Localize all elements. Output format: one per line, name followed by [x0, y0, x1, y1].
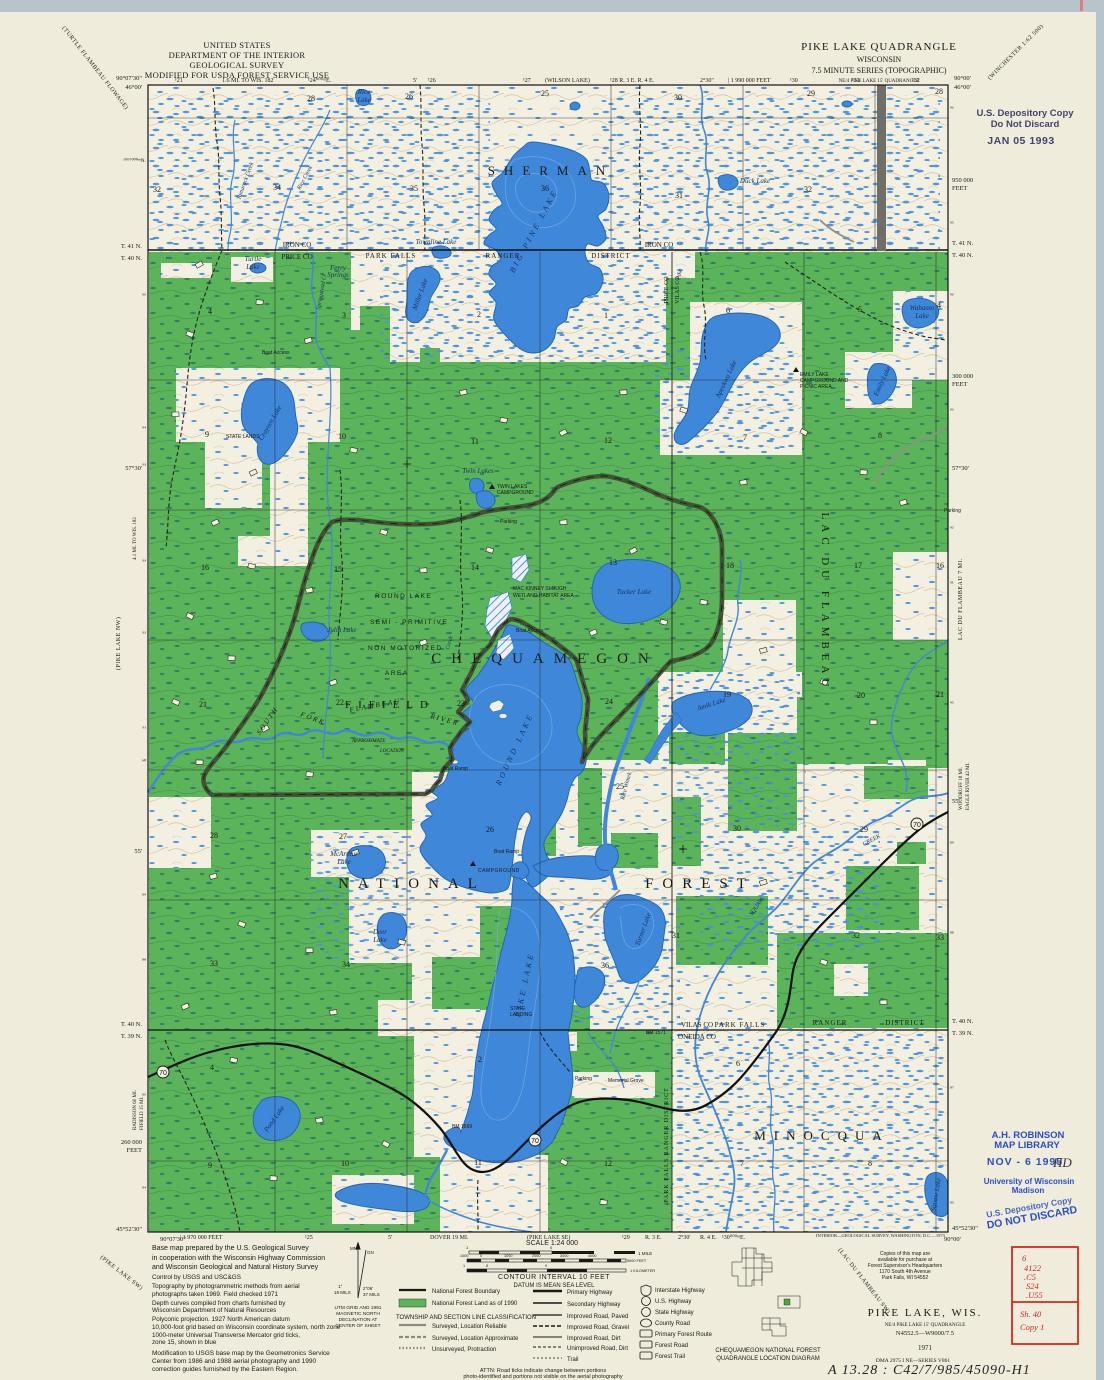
svg-text:Wabasso: Wabasso — [910, 304, 935, 312]
svg-text:FEET: FEET — [126, 1147, 142, 1154]
svg-text:4.1 MI. TO WIS. 182: 4.1 MI. TO WIS. 182 — [133, 517, 138, 560]
svg-text:5000 FEET: 5000 FEET — [627, 1259, 647, 1263]
svg-text:PRICE CO: PRICE CO — [281, 253, 312, 261]
svg-text:photo-identified and portions: photo-identified and portions not visibl… — [463, 1374, 623, 1380]
svg-text:90°07'30": 90°07'30" — [116, 75, 142, 82]
svg-text:33: 33 — [210, 959, 218, 968]
svg-text:1 MILE: 1 MILE — [638, 1251, 652, 1256]
svg-text:Duck Lake: Duck Lake — [739, 177, 770, 185]
svg-text:Improved Road, Paved: Improved Road, Paved — [567, 1314, 628, 1320]
svg-text:¹29: ¹29 — [622, 1235, 630, 1241]
svg-text:90°00': 90°00' — [944, 1236, 961, 1243]
svg-text:ROUND LAKE: ROUND LAKE — [375, 593, 432, 600]
svg-text:1°: 1° — [338, 1284, 343, 1289]
svg-text:⁸⁹: ⁸⁹ — [950, 841, 954, 847]
svg-text:PIKE LAKE QUADRANGLE: PIKE LAKE QUADRANGLE — [801, 41, 957, 53]
svg-text:25: 25 — [616, 782, 624, 791]
svg-text:35: 35 — [410, 184, 418, 193]
svg-text:⁹⁶: ⁹⁶ — [950, 106, 954, 112]
svg-text:Deer: Deer — [372, 928, 387, 936]
svg-text:Do Not Discard: Do Not Discard — [991, 119, 1060, 130]
svg-text:30: 30 — [733, 824, 741, 833]
svg-text:1: 1 — [463, 1264, 465, 1268]
svg-text:Surveyed, Location Approximate: Surveyed, Location Approximate — [432, 1336, 519, 1342]
svg-text:MN: MN — [350, 1246, 357, 1251]
svg-text:DISTRICT: DISTRICT — [885, 1019, 925, 1027]
svg-text:State Highway: State Highway — [655, 1310, 694, 1316]
svg-text:Unimproved Road, Dirt: Unimproved Road, Dirt — [567, 1346, 628, 1352]
svg-text:3: 3 — [342, 311, 346, 320]
svg-text:MAGNETIC NORTH: MAGNETIC NORTH — [336, 1311, 380, 1317]
svg-text:Lake: Lake — [245, 263, 260, 271]
svg-text:Springs: Springs — [327, 271, 349, 279]
svg-text:10,000-foot grid based on Wisc: 10,000-foot grid based on Wisconsin coor… — [152, 1324, 341, 1331]
svg-text:32: 32 — [153, 185, 161, 194]
svg-text:⁹⁴: ⁹⁴ — [142, 426, 146, 432]
svg-text:22: 22 — [336, 698, 344, 707]
svg-text:IRON CO: IRON CO — [283, 241, 312, 249]
svg-text:¹25: ¹25 — [305, 1235, 313, 1241]
svg-text:CONTOUR INTERVAL 10 FEET: CONTOUR INTERVAL 10 FEET — [498, 1274, 610, 1281]
svg-text:IRON CO: IRON CO — [645, 241, 674, 249]
svg-text:T. 39 N.: T. 39 N. — [121, 1033, 143, 1040]
svg-text:2: 2 — [477, 310, 481, 319]
svg-text:CAMPGROUND: CAMPGROUND — [478, 868, 520, 874]
svg-text:Improved Road, Gravel: Improved Road, Gravel — [567, 1325, 629, 1331]
svg-text:10: 10 — [338, 432, 346, 441]
svg-text:NE/4 PIKE LAKE 15' QUADRANGLE: NE/4 PIKE LAKE 15' QUADRANGLE — [885, 1323, 966, 1328]
svg-text:AREA: AREA — [385, 670, 409, 677]
svg-text:18 MILS: 18 MILS — [334, 1290, 351, 1295]
svg-text:1: 1 — [604, 311, 608, 320]
svg-text:DEPARTMENT OF THE INTERIOR: DEPARTMENT OF THE INTERIOR — [169, 50, 306, 60]
svg-text:⁸⁶: ⁸⁶ — [142, 1093, 146, 1099]
svg-text:⁸⁵: ⁸⁵ — [950, 1201, 954, 1207]
svg-text:MAP LIBRARY: MAP LIBRARY — [994, 1140, 1060, 1151]
svg-text:21: 21 — [199, 700, 207, 709]
svg-text:28: 28 — [935, 87, 943, 96]
svg-text:7: 7 — [743, 433, 747, 442]
svg-text:¹30⁰⁰⁰ᵐE.: ¹30⁰⁰⁰ᵐE. — [722, 1234, 746, 1241]
svg-text:28: 28 — [210, 831, 218, 840]
svg-text:Parking: Parking — [944, 508, 961, 514]
svg-text:3: 3 — [341, 1061, 345, 1070]
svg-text:PARK FALLS RANGER DISTRICT: PARK FALLS RANGER DISTRICT — [664, 1087, 670, 1203]
svg-text:correction guides furnished by: correction guides furnished by the Easte… — [152, 1366, 298, 1373]
svg-text:photographs taken 1969. Fiel: photographs taken 1969. Field checked 19… — [152, 1291, 279, 1298]
svg-text:27: 27 — [339, 832, 347, 841]
svg-text:Primary Forest Route: Primary Forest Route — [655, 1332, 713, 1338]
svg-text:UNITED STATES: UNITED STATES — [203, 40, 270, 50]
svg-text:28: 28 — [307, 94, 315, 103]
svg-text:6: 6 — [726, 306, 730, 315]
svg-text:¹28 R. 3 E. R. 4 E.: ¹28 R. 3 E. R. 4 E. — [610, 78, 655, 84]
svg-text:(WILSON LAKE): (WILSON LAKE) — [545, 77, 590, 84]
svg-text:8: 8 — [878, 431, 882, 440]
svg-text:⁹²: ⁹² — [142, 631, 146, 637]
svg-text:MAC KINNEY SLOUGH: MAC KINNEY SLOUGH — [513, 586, 567, 592]
svg-text:Boat Access: Boat Access — [262, 350, 290, 356]
svg-text:⁸⁸: ⁸⁸ — [142, 958, 146, 964]
svg-text:⁹⁵: ⁹⁵ — [950, 221, 954, 227]
svg-text:PIKE LAKE, WIS.: PIKE LAKE, WIS. — [868, 1307, 983, 1319]
svg-text:1 KILOMETER: 1 KILOMETER — [630, 1269, 655, 1273]
svg-text:NON MOTORIZED: NON MOTORIZED — [368, 645, 443, 652]
svg-text:45°52'30": 45°52'30" — [116, 1226, 142, 1233]
svg-text:⁹⁵: ⁹⁵ — [950, 701, 954, 707]
svg-text:PARK FALLS: PARK FALLS — [366, 252, 417, 260]
svg-text:WETLAND HABITAT AREA: WETLAND HABITAT AREA — [513, 593, 575, 599]
svg-text:GN: GN — [367, 1250, 374, 1255]
svg-text:PICNIC AREA: PICNIC AREA — [800, 384, 832, 390]
svg-text:SEMI - PRIMITIVE: SEMI - PRIMITIVE — [370, 619, 448, 626]
svg-text:Trail: Trail — [567, 1357, 578, 1363]
svg-text:57°30': 57°30' — [952, 465, 969, 472]
svg-text:CAMPGROUND: CAMPGROUND — [497, 490, 534, 496]
svg-text:Lake: Lake — [356, 96, 371, 104]
svg-text:Park Falls, WI 54552: Park Falls, WI 54552 — [882, 1275, 929, 1281]
svg-text:13: 13 — [609, 558, 617, 567]
svg-text:1.6 MI. TO WIS. 182: 1.6 MI. TO WIS. 182 — [222, 78, 274, 84]
svg-text:12: 12 — [604, 1159, 612, 1168]
svg-text:⁹³: ⁹³ — [142, 559, 146, 565]
svg-text:6: 6 — [736, 1059, 740, 1068]
svg-text:2: 2 — [478, 1055, 482, 1064]
svg-text:⁵⁰⁹⁷⁰⁰⁰ᵐN.: ⁵⁰⁹⁷⁰⁰⁰ᵐN. — [123, 157, 146, 164]
svg-text:8: 8 — [868, 1159, 872, 1168]
svg-text:11: 11 — [474, 1158, 482, 1167]
svg-text:T. 41 N.: T. 41 N. — [952, 240, 974, 247]
svg-text:EAGLE RIVER 42 MI.: EAGLE RIVER 42 MI. — [966, 763, 971, 811]
svg-text:57°30': 57°30' — [125, 465, 142, 472]
svg-text:Interstate Highway: Interstate Highway — [655, 1288, 705, 1294]
svg-text:Townline Lake: Townline Lake — [416, 238, 457, 246]
svg-text:JAN 05 1993: JAN 05 1993 — [987, 135, 1054, 147]
svg-text:4: 4 — [937, 301, 941, 310]
svg-text:N4552.5—W9000/7.5: N4552.5—W9000/7.5 — [896, 1330, 954, 1337]
svg-text:CHEQUAMEGON: CHEQUAMEGON — [431, 651, 659, 667]
svg-text:70: 70 — [913, 822, 921, 829]
svg-text:National Forest Boundary: National Forest Boundary — [432, 1289, 500, 1295]
svg-text:4: 4 — [210, 1063, 214, 1072]
svg-text:5': 5' — [413, 78, 417, 84]
svg-text:34: 34 — [342, 960, 350, 969]
svg-text:LOCATION: LOCATION — [379, 749, 405, 754]
svg-text:⁹¹: ⁹¹ — [950, 581, 954, 587]
svg-text:| 1 990 000 FEET: | 1 990 000 FEET — [728, 78, 771, 84]
svg-text:R. 4 E.: R. 4 E. — [700, 1235, 717, 1241]
svg-text:LAC DU FLAMBEAU 7 MI.: LAC DU FLAMBEAU 7 MI. — [958, 558, 964, 640]
svg-text:34: 34 — [273, 183, 281, 192]
svg-text:MINOCQUA: MINOCQUA — [754, 1128, 890, 1143]
svg-text:46°00': 46°00' — [954, 84, 971, 91]
svg-text:4000: 4000 — [588, 1254, 596, 1258]
svg-text:PARK FALLS: PARK FALLS — [715, 1021, 766, 1029]
svg-text:33: 33 — [936, 933, 944, 942]
svg-text:Madison: Madison — [1012, 1186, 1045, 1195]
svg-text:1000-meter Universal Transvers: 1000-meter Universal Transverse Mercator… — [152, 1332, 300, 1339]
svg-text:R. 3 E.: R. 3 E. — [645, 1235, 662, 1241]
svg-text:31: 31 — [672, 931, 680, 940]
svg-text:NOV - 6 1995: NOV - 6 1995 — [987, 1156, 1063, 1168]
svg-text:20: 20 — [857, 691, 865, 700]
svg-text:4: 4 — [208, 307, 212, 316]
svg-text:5': 5' — [388, 1235, 392, 1241]
svg-text:Improved Road, Dirt: Improved Road, Dirt — [567, 1336, 621, 1342]
svg-text:HD: HD — [1052, 1155, 1072, 1170]
svg-text:16: 16 — [936, 561, 944, 570]
svg-text:CHEQUAMEGON NATIONAL FOREST: CHEQUAMEGON NATIONAL FOREST — [715, 1348, 821, 1354]
svg-text:FIFIELD 15 MI.: FIFIELD 15 MI. — [140, 1097, 145, 1130]
svg-text:Twin Lakes: Twin Lakes — [462, 467, 494, 475]
svg-text:Control by USGS and USC&GS: Control by USGS and USC&GS — [152, 1274, 241, 1281]
svg-text:⁸⁷: ⁸⁷ — [950, 1086, 954, 1092]
svg-text:25: 25 — [541, 89, 549, 98]
svg-text:LAC DU FLAMBEAU: LAC DU FLAMBEAU — [819, 513, 831, 692]
svg-text:DATUM IS MEAN SEA LEVEL: DATUM IS MEAN SEA LEVEL — [514, 1283, 596, 1289]
svg-text:300 000: 300 000 — [952, 373, 973, 380]
svg-text:30: 30 — [674, 93, 682, 102]
svg-text:⁹³: ⁹³ — [950, 408, 954, 414]
svg-text:24: 24 — [605, 697, 613, 706]
svg-text:45°52'30": 45°52'30" — [952, 1225, 978, 1232]
svg-text:32: 32 — [804, 185, 812, 194]
svg-text:and Wisconsin Geological and N: and Wisconsin Geological and Natural His… — [152, 1264, 319, 1271]
svg-text:37 MILS: 37 MILS — [363, 1292, 380, 1297]
svg-text:BM 1571: BM 1571 — [646, 1030, 666, 1036]
svg-text:Depth curves compiled from cha: Depth curves compiled from charts furnis… — [152, 1300, 286, 1307]
svg-text:¹21: ¹21 — [175, 78, 183, 84]
svg-text:Boat Access: Boat Access — [516, 628, 544, 634]
svg-text:Unsurveyed, Protraction: Unsurveyed, Protraction — [432, 1347, 496, 1353]
svg-text:UTM GRID AND 1991: UTM GRID AND 1991 — [335, 1305, 382, 1311]
svg-text:BM 1569: BM 1569 — [452, 1124, 472, 1130]
svg-text:950 000: 950 000 — [952, 177, 973, 184]
svg-text:APPROXIMATE: APPROXIMATE — [351, 739, 385, 744]
svg-text:Lake: Lake — [914, 312, 929, 320]
svg-text:Topography by photogrammetric: Topography by photogrammetric methods fr… — [152, 1283, 300, 1290]
svg-text:FEET: FEET — [952, 185, 968, 192]
svg-text:NATIONAL: NATIONAL — [338, 876, 486, 892]
svg-text:Parking: Parking — [575, 1076, 592, 1082]
svg-text:⁸⁹: ⁸⁹ — [142, 893, 146, 899]
svg-text:23: 23 — [457, 699, 465, 708]
svg-text:⁹⁶: ⁹⁶ — [142, 293, 146, 299]
svg-text:¹27: ¹27 — [523, 78, 531, 84]
svg-text:STATE LANDS: STATE LANDS — [226, 434, 260, 440]
svg-text:McArthur: McArthur — [329, 850, 358, 858]
svg-text:2°30': 2°30' — [678, 1234, 690, 1241]
svg-text:⁹¹: ⁹¹ — [142, 726, 146, 732]
svg-text:1971: 1971 — [918, 1344, 933, 1352]
svg-text:2°30": 2°30" — [700, 77, 714, 84]
svg-text:in cooperation with the Wiscon: in cooperation with the Wisconsin Highwa… — [152, 1255, 325, 1262]
svg-text:5: 5 — [858, 305, 862, 314]
svg-text:Turtle: Turtle — [245, 255, 262, 263]
svg-text:Sh. 40: Sh. 40 — [1020, 1309, 1042, 1319]
svg-text:Boat Ramp: Boat Ramp — [443, 766, 468, 772]
svg-text:Tucker Lake: Tucker Lake — [617, 588, 651, 596]
svg-text:Forest Road: Forest Road — [655, 1343, 688, 1349]
svg-text:17: 17 — [854, 561, 862, 570]
svg-text:15: 15 — [334, 565, 342, 574]
svg-text:SHERMAN: SHERMAN — [488, 163, 615, 178]
svg-text:Modification to USGS base map: Modification to USGS base map by the Geo… — [152, 1350, 330, 1357]
svg-text:12: 12 — [604, 436, 612, 445]
svg-text:VILAS CO: VILAS CO — [681, 1021, 713, 1029]
svg-text:¹30: ¹30 — [790, 78, 798, 84]
svg-text:16: 16 — [201, 563, 209, 572]
svg-text:⁹³: ⁹³ — [142, 463, 146, 469]
svg-text:Polyconic projection. 1927 N: Polyconic projection. 1927 North America… — [152, 1316, 290, 1323]
svg-text:1000: 1000 — [460, 1254, 468, 1258]
svg-text:Lake: Lake — [336, 858, 351, 866]
svg-text:Wisconsin Department of Natura: Wisconsin Department of Natural Resource… — [152, 1307, 276, 1314]
svg-text:U.S. Depository Copy: U.S. Depository Copy — [976, 108, 1074, 119]
svg-text:Julia Lake: Julia Lake — [327, 626, 356, 634]
svg-text:Secondary Highway: Secondary Highway — [567, 1302, 620, 1308]
svg-text:9: 9 — [208, 1161, 212, 1170]
svg-text:Primary Highway: Primary Highway — [567, 1290, 612, 1296]
svg-text:FEET: FEET — [952, 381, 968, 388]
svg-text:NE/4 PIKE LAKE 15' QUADRANGLE: NE/4 PIKE LAKE 15' QUADRANGLE — [839, 79, 920, 84]
svg-text:1000: 1000 — [504, 1254, 512, 1258]
svg-text:70: 70 — [531, 1138, 539, 1145]
svg-text:7.5 MINUTE SERIES (TOPOGRAPHIC: 7.5 MINUTE SERIES (TOPOGRAPHIC) — [812, 66, 947, 75]
svg-text:Base map prepared by the U.S.: Base map prepared by the U.S. Geological… — [152, 1245, 309, 1252]
svg-text:WOODRUFF 18 MI.: WOODRUFF 18 MI. — [959, 767, 964, 810]
svg-text:ONEIDA CO: ONEIDA CO — [678, 1033, 716, 1041]
svg-text:U.S. Highway: U.S. Highway — [655, 1299, 691, 1305]
svg-text:WISCONSIN: WISCONSIN — [857, 55, 902, 64]
svg-text:zone 15, shown in blue: zone 15, shown in blue — [152, 1339, 217, 1346]
svg-text:10: 10 — [341, 1159, 349, 1168]
svg-text:T. 40 N.: T. 40 N. — [952, 252, 974, 259]
svg-text:70: 70 — [159, 1070, 167, 1077]
svg-text:⁹⁶: ⁹⁶ — [950, 293, 954, 299]
svg-text:T. 41 N.: T. 41 N. — [121, 243, 143, 250]
svg-text:31: 31 — [675, 191, 683, 200]
svg-text:RANGER: RANGER — [813, 1019, 848, 1027]
svg-text:90°00': 90°00' — [954, 75, 971, 82]
svg-text:0: 0 — [545, 1264, 547, 1268]
svg-text:Surveyed, Location Reliable: Surveyed, Location Reliable — [432, 1324, 507, 1330]
svg-text:7: 7 — [740, 1159, 744, 1168]
svg-text:3000: 3000 — [560, 1254, 568, 1258]
svg-text:14: 14 — [471, 563, 479, 572]
svg-text:¹26: ¹26 — [428, 78, 436, 84]
svg-text:DECLINATION AT: DECLINATION AT — [339, 1317, 378, 1323]
svg-text:T. 40 N.: T. 40 N. — [121, 255, 143, 262]
svg-text:T. 40 N.: T. 40 N. — [121, 1021, 143, 1028]
svg-text:46°00': 46°00' — [125, 84, 142, 91]
svg-text:.5: .5 — [485, 1264, 488, 1268]
svg-text:260 000: 260 000 — [121, 1139, 142, 1146]
svg-text:RADISSON 60 MI.: RADISSON 60 MI. — [133, 1090, 138, 1130]
svg-text:⁸⁴: ⁸⁴ — [142, 1186, 146, 1192]
svg-text:26: 26 — [405, 92, 413, 101]
svg-text:T. 40 N.: T. 40 N. — [952, 1018, 974, 1025]
svg-text:Lake: Lake — [372, 936, 387, 944]
svg-text:Center from 1986 and 1988 aeri: Center from 1986 and 1988 aerial photogr… — [152, 1358, 316, 1365]
svg-text:21: 21 — [936, 690, 944, 699]
svg-text:55': 55' — [134, 848, 142, 855]
svg-text:TOWNSHIP AND SECTION LINE CLAS: TOWNSHIP AND SECTION LINE CLASSIFICATION — [396, 1315, 536, 1321]
svg-text:GEOLOGICAL SURVEY: GEOLOGICAL SURVEY — [189, 60, 284, 70]
svg-text:PRICE CO: PRICE CO — [664, 276, 670, 304]
svg-text:¹32: ¹32 — [912, 78, 920, 84]
svg-text:Rice: Rice — [357, 88, 370, 96]
svg-text:26: 26 — [486, 825, 494, 834]
svg-text:Parking: Parking — [500, 519, 517, 525]
svg-text:| 1 970 000 FEET: | 1 970 000 FEET — [180, 1235, 223, 1241]
svg-text:¹31: ¹31 — [852, 78, 860, 84]
svg-text:18: 18 — [726, 561, 734, 570]
svg-text:A 13.28 : C42/7/985/45090-H1: A 13.28 : C42/7/985/45090-H1 — [827, 1363, 1031, 1378]
svg-text:CENTER OF SHEET: CENTER OF SHEET — [335, 1323, 380, 1329]
svg-text:29: 29 — [807, 89, 815, 98]
svg-text:¹24⁰⁰⁰ᵐE.: ¹24⁰⁰⁰ᵐE. — [308, 77, 332, 84]
svg-text:2°06': 2°06' — [363, 1286, 373, 1291]
svg-text:11: 11 — [471, 437, 479, 446]
svg-text:29: 29 — [860, 825, 868, 834]
svg-text:· Memorial Grove: · Memorial Grove — [605, 1078, 644, 1084]
svg-text:FOREST: FOREST — [645, 876, 755, 892]
svg-text:Copy 1: Copy 1 — [1020, 1322, 1044, 1332]
svg-text:QUADRANGLE LOCATION DIAGRAM: QUADRANGLE LOCATION DIAGRAM — [716, 1356, 820, 1362]
svg-text:36: 36 — [601, 961, 609, 970]
svg-text:Forest Trail: Forest Trail — [655, 1354, 685, 1360]
svg-text:LANDING: LANDING — [510, 1012, 532, 1018]
svg-text:⁹²: ⁹² — [950, 526, 954, 532]
svg-text:DOVER 19 MI.: DOVER 19 MI. — [430, 1235, 469, 1241]
svg-text:32: 32 — [852, 931, 860, 940]
svg-text:19: 19 — [723, 690, 731, 699]
svg-text:DISTRICT: DISTRICT — [591, 252, 631, 260]
svg-text:National Forest Land as of 199: National Forest Land as of 1990 — [432, 1301, 518, 1307]
svg-text:9: 9 — [205, 430, 209, 439]
svg-text:T. 39 N.: T. 39 N. — [952, 1030, 974, 1037]
svg-text:⁸⁸: ⁸⁸ — [950, 931, 954, 937]
svg-text:County Road: County Road — [655, 1321, 690, 1327]
svg-text:Boat Ramp: Boat Ramp — [494, 849, 519, 855]
svg-text:University of Wisconsin: University of Wisconsin — [984, 1177, 1075, 1186]
svg-text:36: 36 — [541, 184, 549, 193]
svg-text:(PIKE LAKE NW): (PIKE LAKE NW) — [115, 617, 122, 670]
svg-text:0: 0 — [480, 1254, 482, 1258]
svg-text:.U55: .U55 — [1026, 1290, 1043, 1300]
svg-text:2000: 2000 — [532, 1254, 540, 1258]
